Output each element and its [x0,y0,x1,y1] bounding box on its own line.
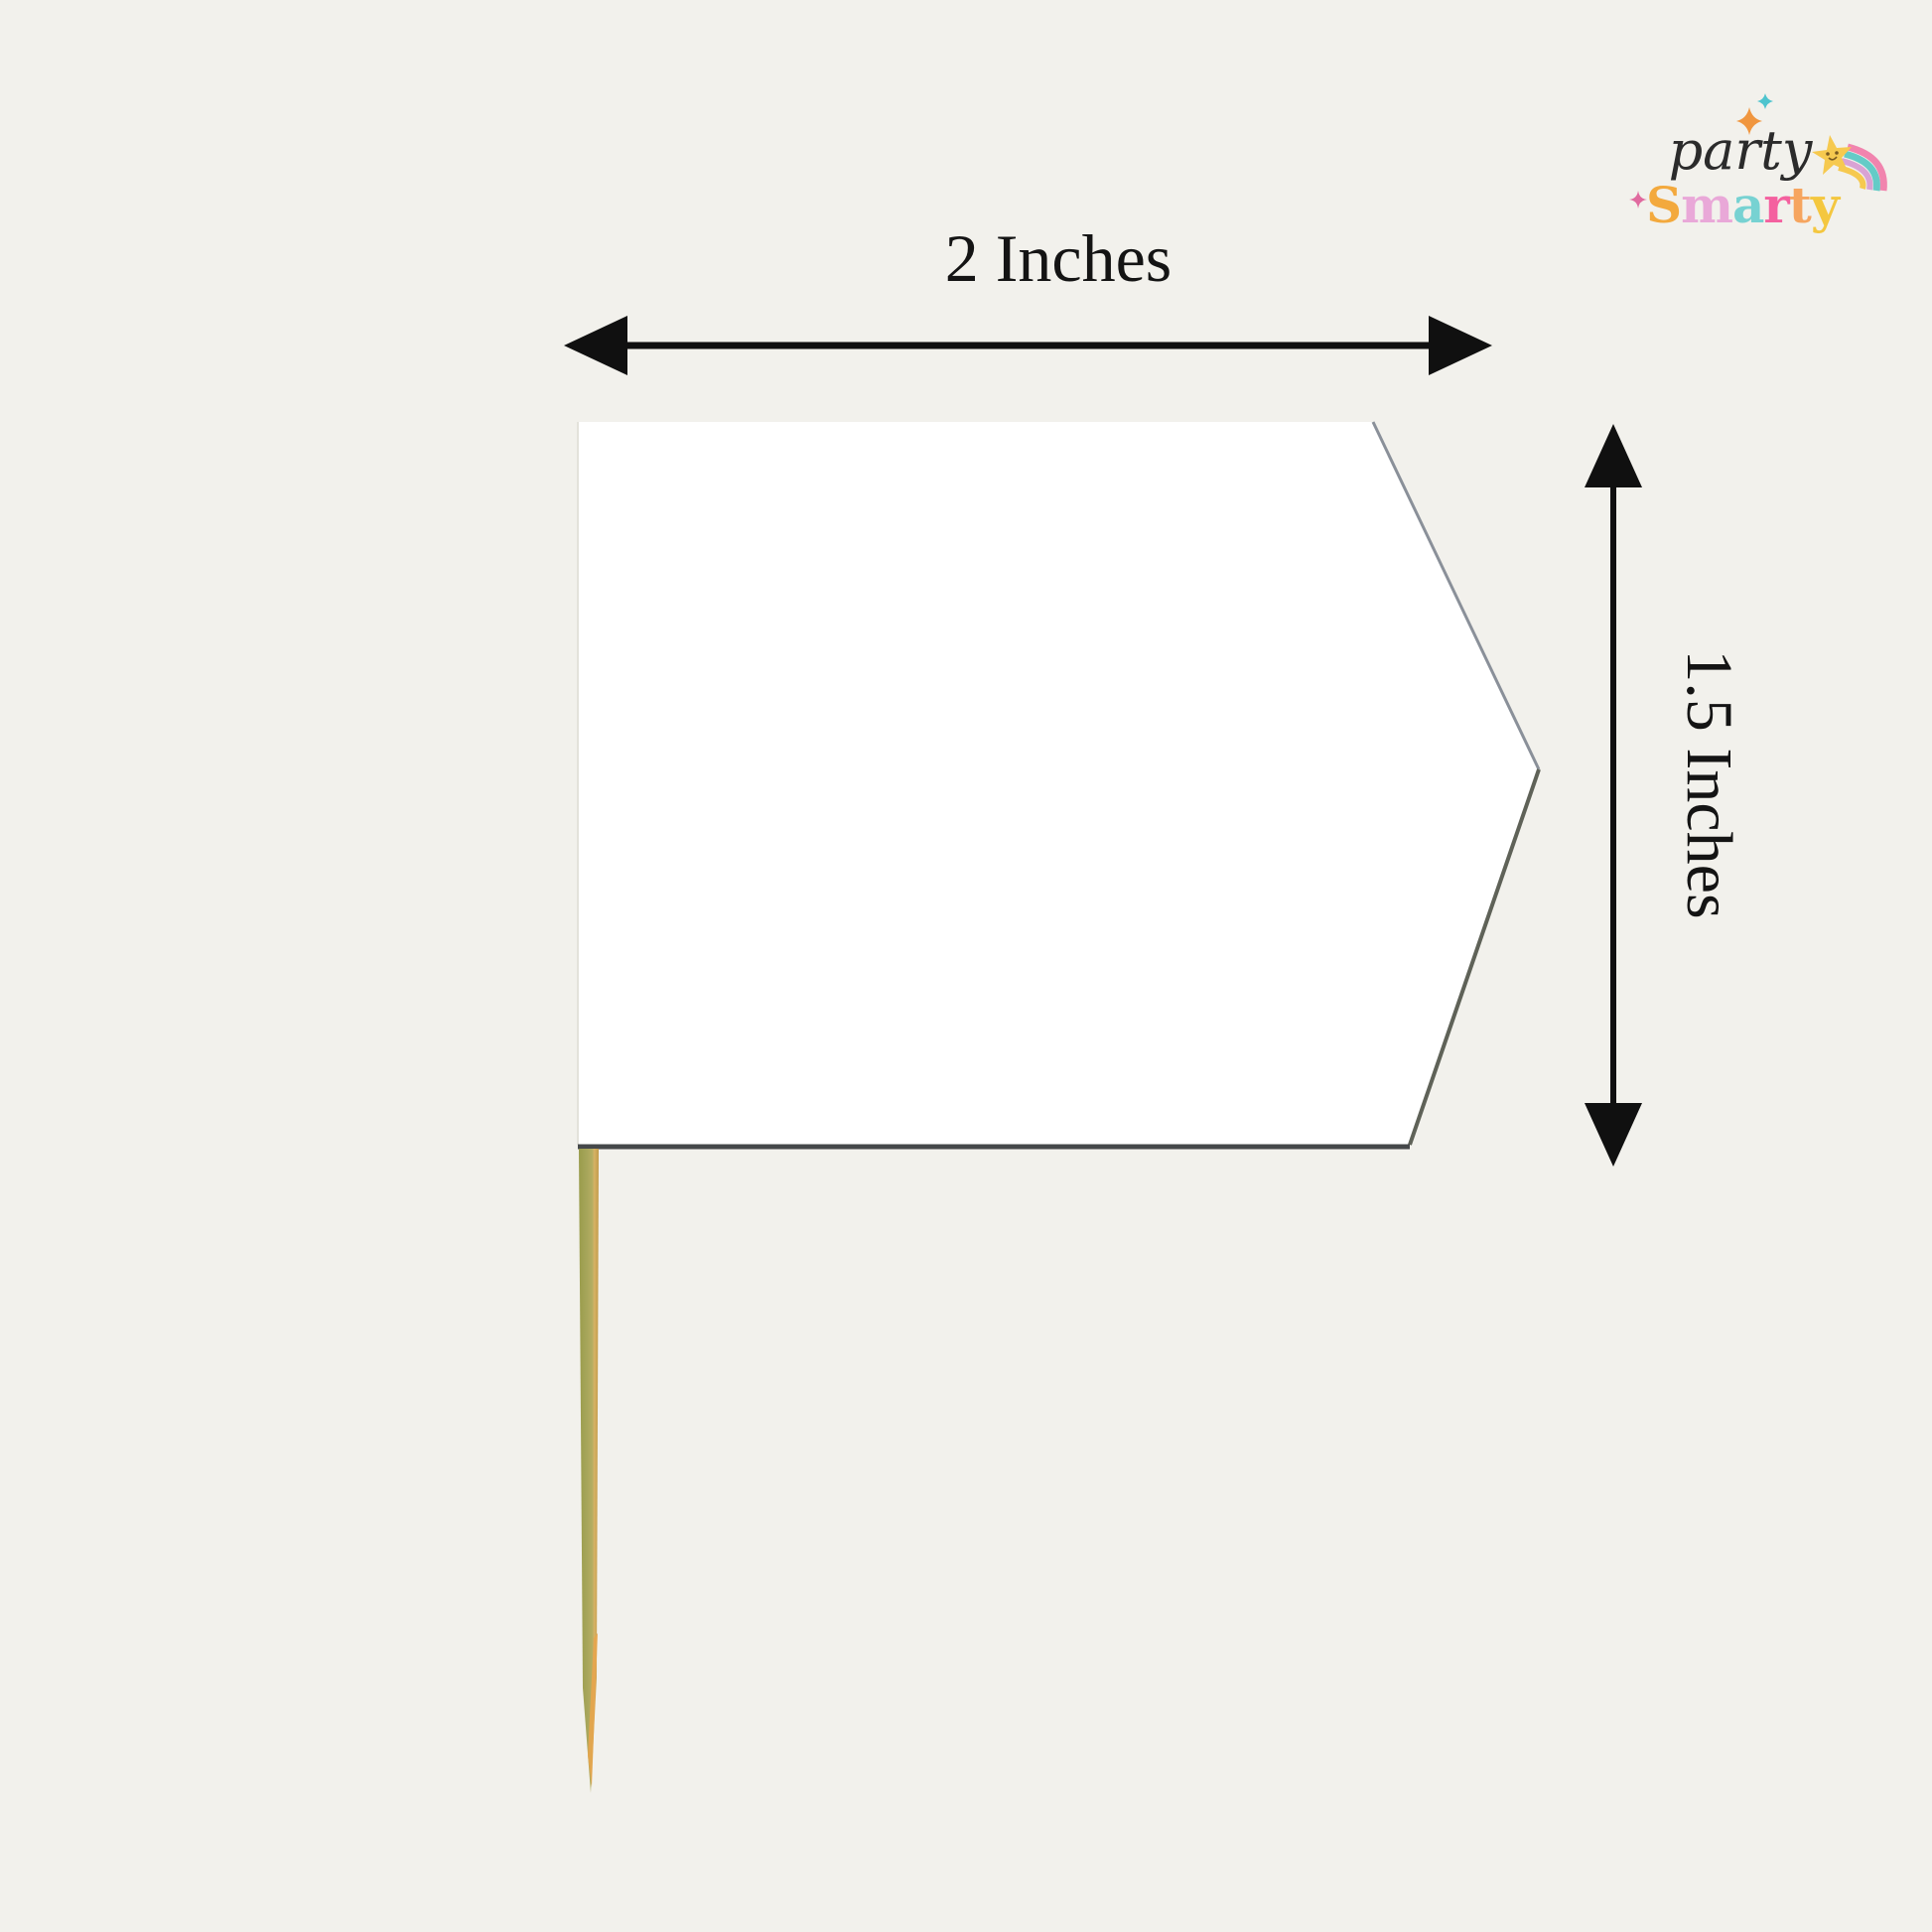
width-arrowhead-left-icon [564,316,627,375]
star-eye-right [1835,151,1839,155]
sparkle-teal-icon [1757,93,1773,109]
sparkle-pink-icon [1629,191,1647,208]
flag-topper [578,422,1539,1147]
width-dimension: 2 Inches [564,220,1492,375]
star-eye-left [1826,152,1830,156]
brand-letter: t [1789,176,1812,234]
brand-letter: S [1646,176,1681,234]
flag-shape [578,422,1539,1145]
product-dimension-image: 2 Inches 1.5 Inches party [0,0,1932,1932]
brand-logo: party Smarty [1629,93,1883,234]
height-arrowhead-top-icon [1585,424,1642,487]
toothpick-stick [579,1149,599,1793]
brand-letter: a [1732,176,1764,234]
logo-script-text: party [1669,119,1814,182]
logo-brand-text: Smarty [1646,176,1842,234]
brand-letter: r [1763,176,1790,234]
width-arrowhead-right-icon [1429,316,1492,375]
brand-letter: y [1810,176,1842,234]
scene-graphic: 2 Inches 1.5 Inches party [0,0,1932,1932]
stick-body [579,1149,599,1793]
brand-letter: m [1681,176,1732,234]
width-label: 2 Inches [945,220,1172,296]
height-arrowhead-bottom-icon [1585,1103,1642,1167]
height-dimension: 1.5 Inches [1585,424,1745,1167]
height-label: 1.5 Inches [1673,649,1745,918]
